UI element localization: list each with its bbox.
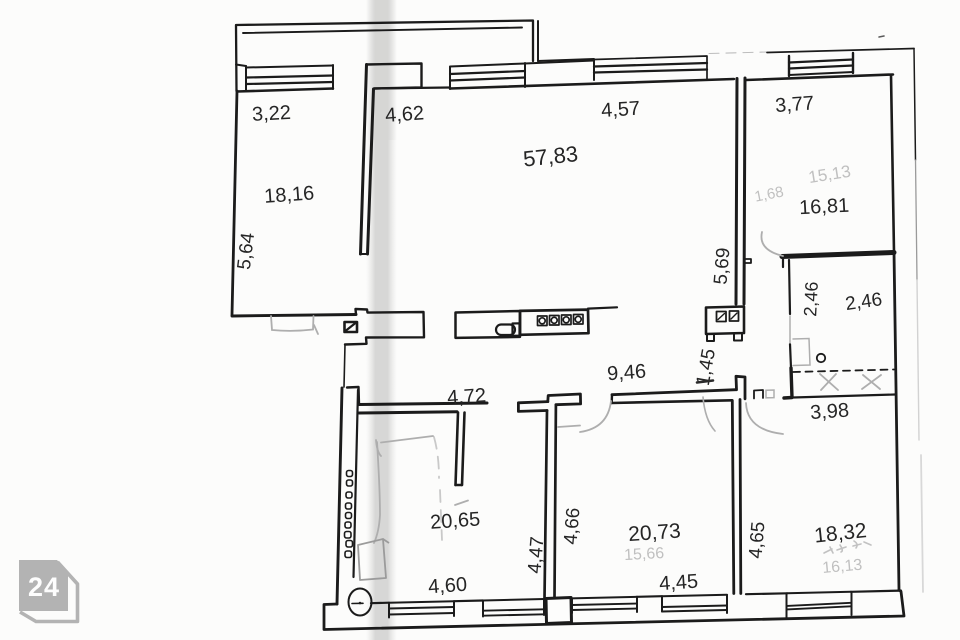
svg-text:2,46: 2,46 [800,281,822,317]
svg-text:4,65: 4,65 [745,521,769,560]
svg-text:16,81: 16,81 [799,195,850,220]
svg-text:9,46: 9,46 [606,361,646,386]
svg-text:4,57: 4,57 [600,97,640,122]
svg-text:24: 24 [28,572,60,602]
svg-text:4,72: 4,72 [446,385,486,410]
svg-text:3,77: 3,77 [774,92,814,117]
svg-text:3,98: 3,98 [809,399,849,424]
svg-text:4,62: 4,62 [384,102,424,127]
svg-text:5,69: 5,69 [710,247,734,286]
svg-text:4,60: 4,60 [427,574,467,599]
svg-text:15,66: 15,66 [624,545,665,564]
svg-text:20,73: 20,73 [627,520,681,547]
svg-text:16,13: 16,13 [822,557,863,577]
svg-text:4,66: 4,66 [560,507,584,546]
svg-text:4,45: 4,45 [658,571,698,596]
svg-text:18,16: 18,16 [263,182,314,207]
svg-text:20,65: 20,65 [429,508,480,533]
svg-text:4,47: 4,47 [524,536,548,575]
svg-text:3,22: 3,22 [251,102,291,126]
